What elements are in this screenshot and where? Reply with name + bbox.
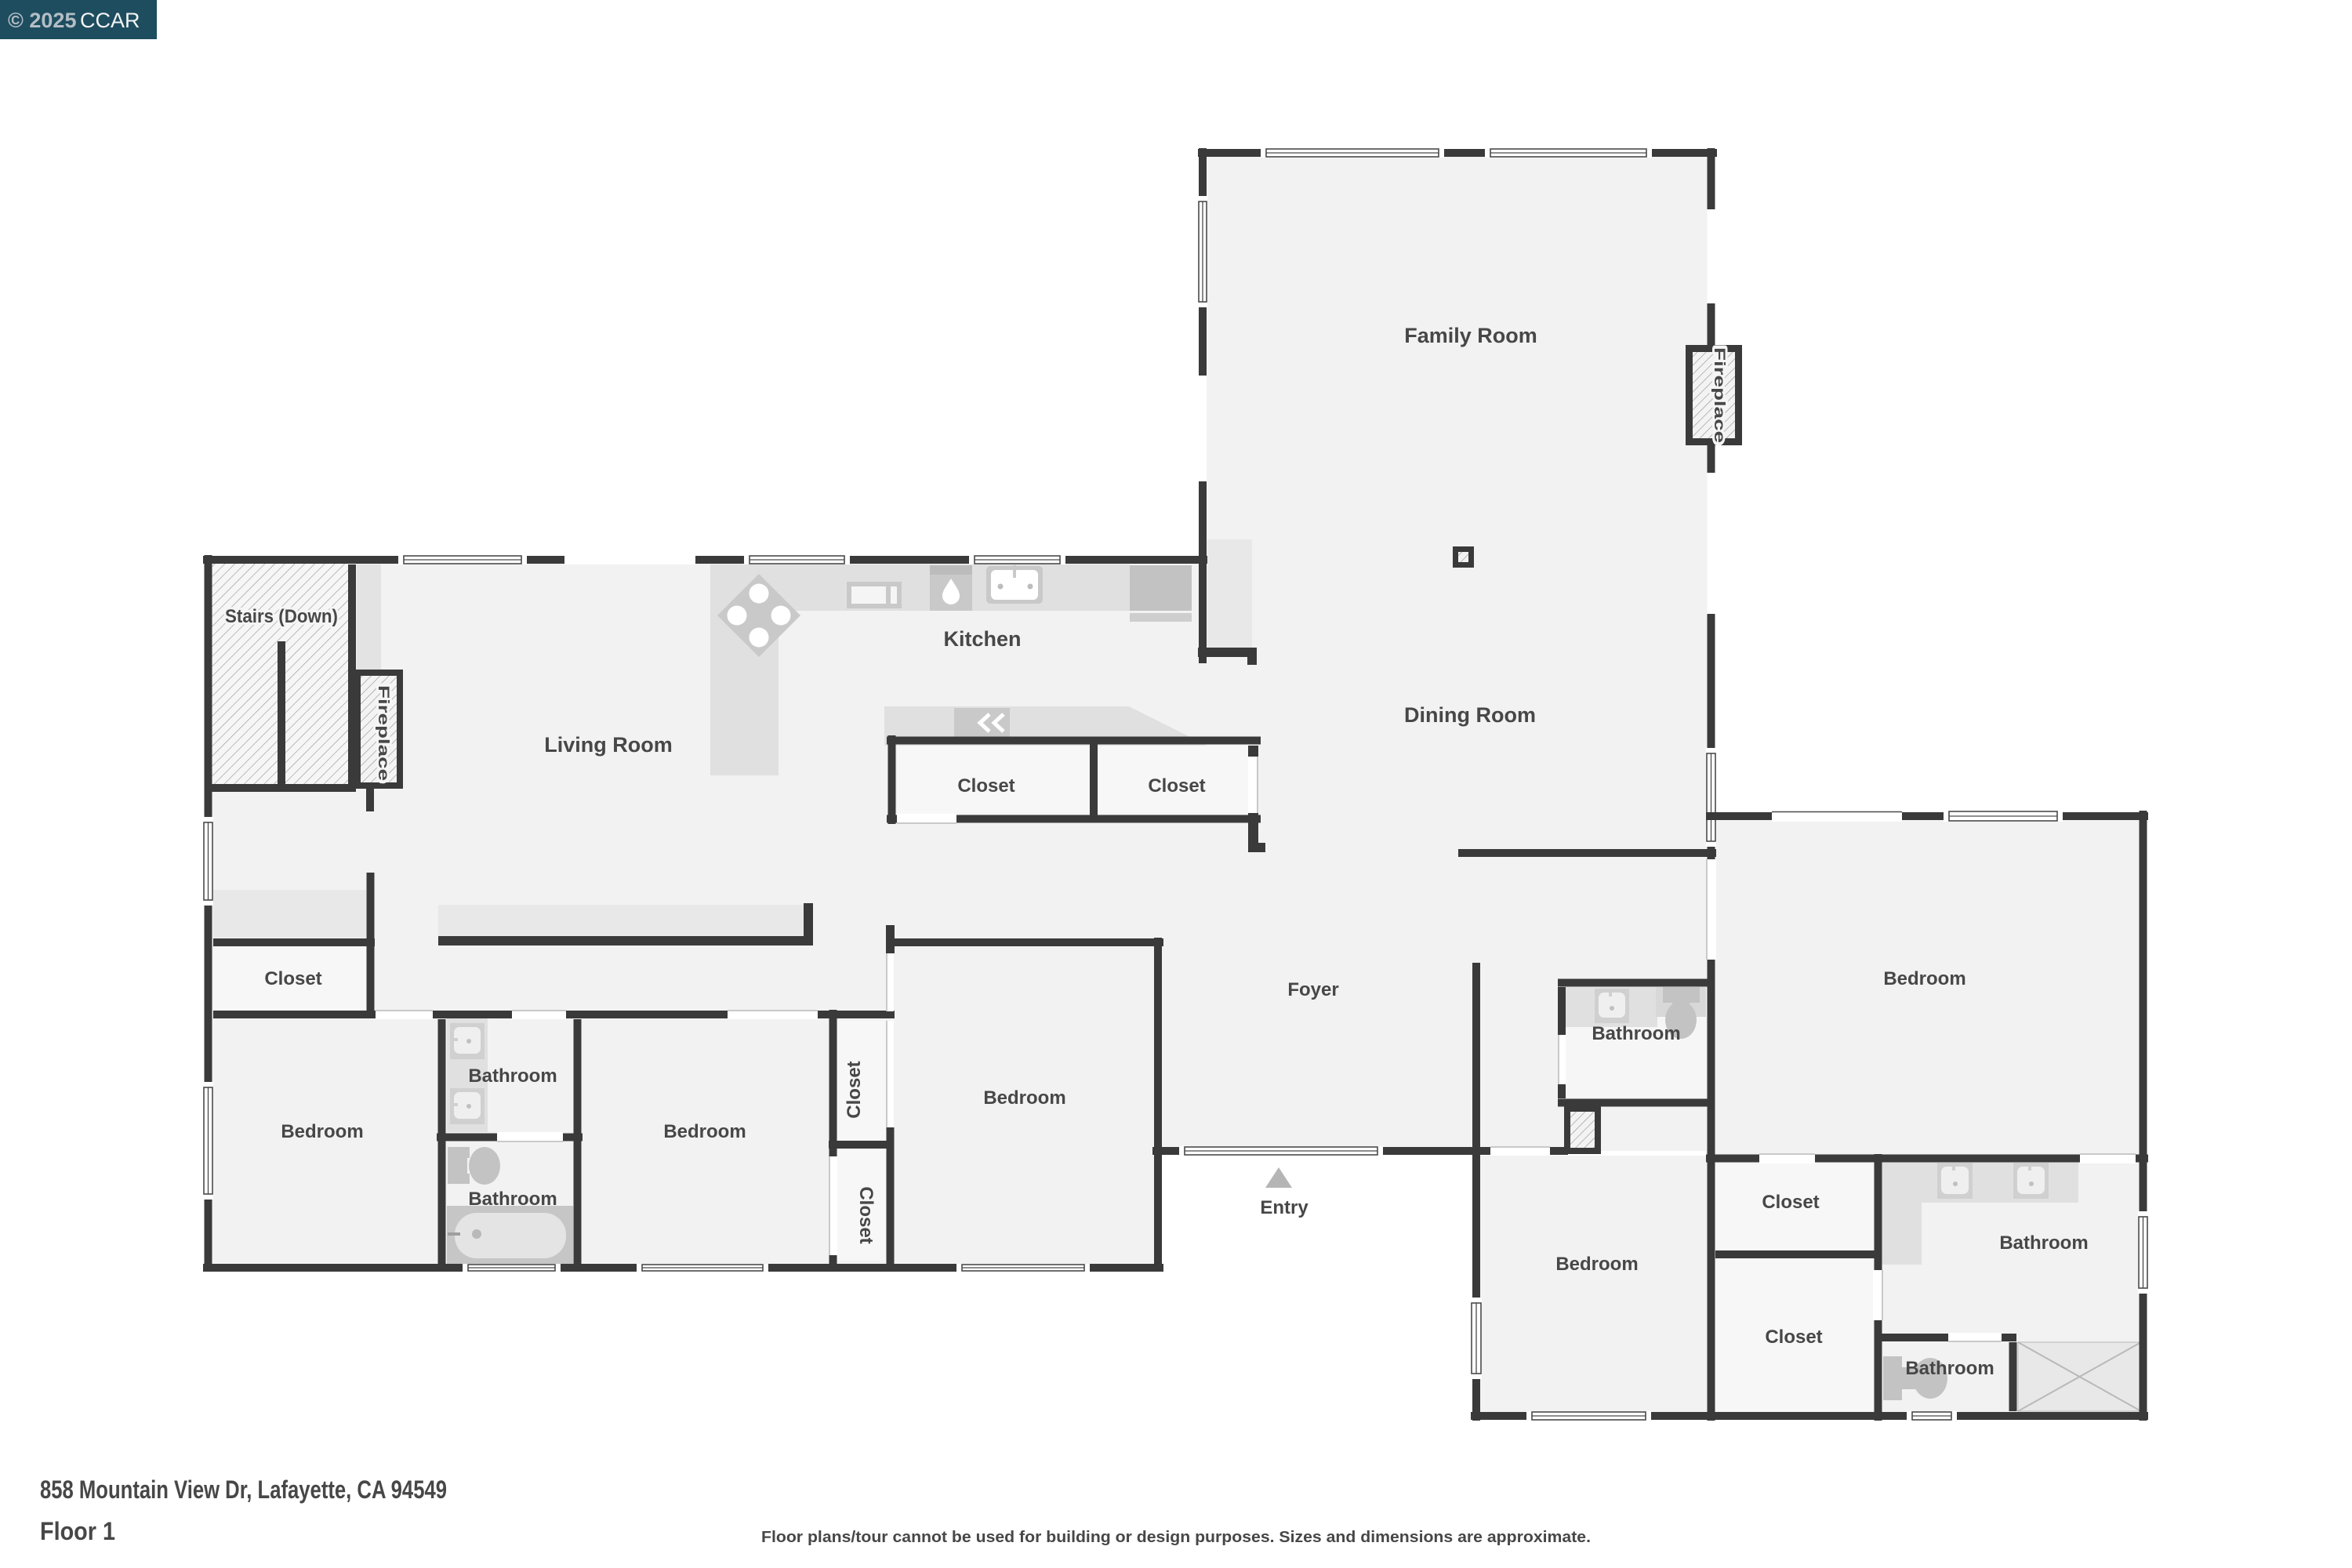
svg-text:Fireplace: Fireplace: [375, 685, 391, 781]
svg-text:Floor 1: Floor 1: [40, 1517, 115, 1545]
svg-text:Closet: Closet: [855, 1186, 877, 1243]
svg-text:Bathroom: Bathroom: [468, 1189, 557, 1210]
svg-text:Floor plans/tour cannot be use: Floor plans/tour cannot be used for buil…: [761, 1529, 1591, 1546]
svg-text:Bathroom: Bathroom: [1905, 1358, 1994, 1379]
svg-text:Closet: Closet: [1765, 1327, 1822, 1348]
svg-text:Closet: Closet: [844, 1061, 865, 1118]
svg-text:858 Mountain View Dr, Lafayett: 858 Mountain View Dr, Lafayette, CA 9454…: [40, 1475, 447, 1504]
svg-text:Closet: Closet: [1148, 775, 1205, 797]
svg-text:Stairs (Down): Stairs (Down): [225, 606, 338, 627]
svg-text:Bedroom: Bedroom: [281, 1121, 363, 1142]
svg-text:Entry: Entry: [1260, 1197, 1308, 1218]
svg-text:Bathroom: Bathroom: [1592, 1023, 1680, 1044]
svg-text:Kitchen: Kitchen: [943, 627, 1021, 651]
svg-text:Dining Room: Dining Room: [1404, 703, 1536, 727]
svg-text:Family Room: Family Room: [1404, 324, 1537, 347]
svg-text:Bathroom: Bathroom: [468, 1065, 557, 1087]
svg-text:Bedroom: Bedroom: [983, 1087, 1065, 1109]
svg-text:Bedroom: Bedroom: [663, 1121, 746, 1142]
svg-text:CCAR: CCAR: [80, 9, 140, 32]
svg-text:© 2025: © 2025: [8, 9, 76, 32]
svg-text:Bedroom: Bedroom: [1883, 968, 1965, 989]
svg-text:Fireplace: Fireplace: [1711, 347, 1727, 443]
svg-text:Living Room: Living Room: [544, 733, 673, 757]
svg-text:Foyer: Foyer: [1287, 979, 1338, 1000]
svg-text:Bedroom: Bedroom: [1555, 1254, 1638, 1275]
svg-text:Closet: Closet: [264, 968, 321, 989]
svg-text:Bathroom: Bathroom: [1999, 1232, 2088, 1254]
svg-text:Closet: Closet: [957, 775, 1014, 797]
svg-text:Closet: Closet: [1762, 1192, 1819, 1213]
